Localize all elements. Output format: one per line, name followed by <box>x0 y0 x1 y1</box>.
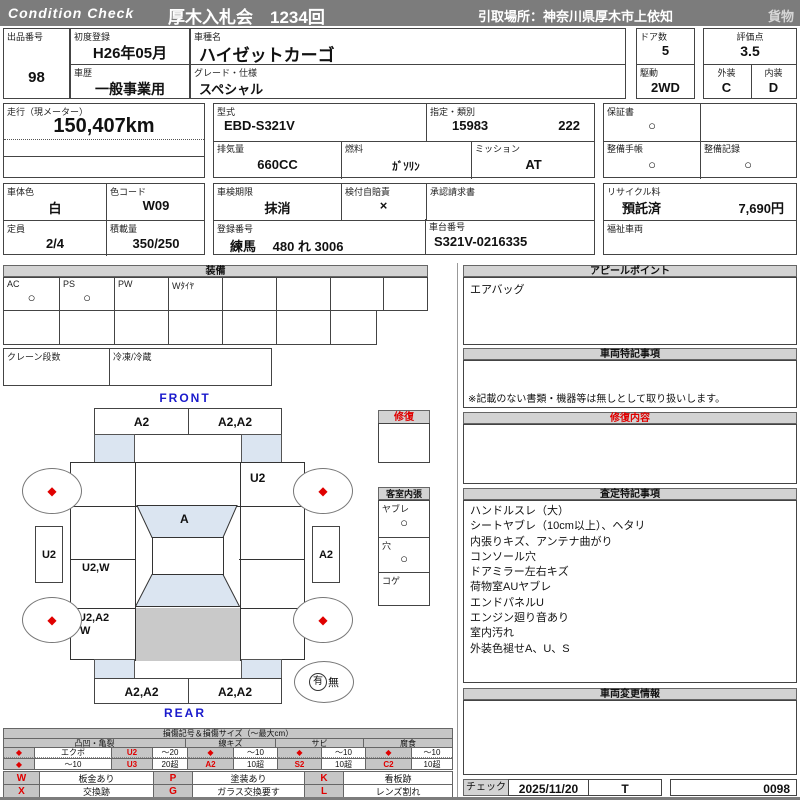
code-desc: 看板跡 <box>344 772 452 784</box>
equipment-cell-empty <box>331 278 384 310</box>
front-bumper-left: A2 <box>94 408 189 435</box>
exhibit-number-value: 98 <box>4 69 69 86</box>
drive-value: 2WD <box>637 80 694 95</box>
legend-size: ～10 <box>412 748 452 758</box>
assessment-line: 内張りキズ、アンテナ曲がり <box>470 535 790 550</box>
inspection-label: 車検期限 <box>217 185 253 198</box>
recycle-fee: 7,690円 <box>738 198 784 217</box>
assessment-line: コンソール穴 <box>470 550 790 565</box>
history-label: 車歴 <box>74 66 92 79</box>
equipment-mark: ○ <box>60 290 114 305</box>
spec-table: 型式 EBD-S321V 指定・類別 15983 222 排気量 660CC 燃… <box>213 103 595 178</box>
damage-diamond-mark: ◆ <box>47 485 56 497</box>
damage-legend-table: 損傷記号＆損傷サイズ（～最大cm） 凸凹・亀裂 線キズ サビ 腐食 ◆ エクボ … <box>3 728 453 770</box>
damage-diamond-mark: ◆ <box>318 614 327 626</box>
odometer-box: 走行（現メーター） 150,407km <box>3 103 205 178</box>
legend-size: ～10 <box>35 759 112 769</box>
class-label: 指定・類別 <box>430 105 475 118</box>
insurance-label: 検付自賠責 <box>345 185 390 198</box>
presence-yes-circled: 有 <box>309 673 327 691</box>
cabin-table: ヤブレ ○ 穴 ○ コゲ <box>378 500 430 606</box>
left-rear-code-line1: U2,A2 <box>78 612 109 624</box>
exterior-label: 外装 <box>704 66 749 79</box>
code-letter: W <box>4 772 40 784</box>
assessment-line: シートヤブレ（10cm以上）、ヘタリ <box>470 519 790 534</box>
cabin-header: 客室内張 <box>378 487 430 500</box>
hood-right-code: U2 <box>250 471 265 485</box>
damage-code: A2 <box>95 415 188 429</box>
code-letter: L <box>305 785 344 797</box>
assessment-line: エンドパネルU <box>470 596 790 611</box>
legend-group: サビ <box>276 739 364 747</box>
presence-oval: 有 無 <box>294 661 354 703</box>
damage-code: A2,A2 <box>189 685 281 699</box>
crane-box: クレーン段数 <box>3 348 110 386</box>
equipment-cell-empty <box>277 278 331 310</box>
equipment-cell-empty <box>115 311 169 344</box>
check-label-cell: チェック <box>463 779 509 796</box>
equipment-row-2 <box>3 310 377 345</box>
repair-mini-header: 修復 <box>378 410 430 424</box>
front-right-wheel: ◆ <box>293 468 353 514</box>
auction-title: 厚木入札会 1234回 <box>168 3 325 28</box>
cabin-item-label: コゲ <box>382 574 400 587</box>
left-rear-code-line2: W <box>80 625 90 637</box>
model-code-label: 型式 <box>217 105 235 118</box>
equipment-label: AC <box>7 279 20 289</box>
exterior-value: C <box>704 80 749 95</box>
legend-mark: ◆ <box>4 759 35 769</box>
front-right-pillar-panel <box>241 434 282 463</box>
fuel-label: 燃料 <box>345 142 363 155</box>
cab-roof-panel <box>152 537 224 575</box>
repair-details-box <box>463 424 797 484</box>
welfare-label: 福祉車両 <box>607 222 643 235</box>
legend-code: S2 <box>278 759 322 769</box>
appeal-content: エアバッグ <box>470 281 525 297</box>
transmission-value: AT <box>471 157 596 172</box>
serial-number: 0098 <box>763 782 790 796</box>
capacity-value: 2/4 <box>4 236 106 251</box>
grade-value: スペシャル <box>199 79 625 98</box>
color-code-label: 色コード <box>110 185 146 198</box>
score-value: 3.5 <box>704 43 796 59</box>
left-side-panel: U2 <box>35 526 63 583</box>
equipment-cell-empty <box>277 311 331 344</box>
legend-size: 10超 <box>234 759 278 769</box>
front-bumper-right: A2,A2 <box>188 408 282 435</box>
left-mid-code: U2,W <box>82 562 110 574</box>
equipment-cell-ps: PS ○ <box>60 278 115 310</box>
legend-group: 凸凹・亀裂 <box>4 739 186 747</box>
repair-mini-box <box>378 423 430 463</box>
cabin-item-mark: ○ <box>379 551 429 566</box>
legend-code: A2 <box>188 759 234 769</box>
diagram-rear-label: REAR <box>140 706 230 720</box>
score-label: 評価点 <box>704 30 796 43</box>
assessment-line: 荷物室AUヤブレ <box>470 580 790 595</box>
doors-drive-table: ドア数 5 駆動 2WD <box>636 28 695 99</box>
chassis-cell: 車台番号 S321V-0216335 <box>425 219 595 255</box>
damage-codes-table: W 板金あり P 塗装あり K 看板跡 X 交換跡 G ガラス交換要す L レン… <box>3 771 453 798</box>
presence-no: 無 <box>328 674 339 690</box>
damage-code: A2,A2 <box>189 415 281 429</box>
equipment-label: PW <box>118 279 133 289</box>
interior-value: D <box>751 80 796 95</box>
maintenance-book-value: ○ <box>604 157 700 172</box>
front-left-wheel: ◆ <box>22 468 82 514</box>
cargo-type: 貨物 <box>768 6 794 25</box>
warranty-label: 保証書 <box>607 105 634 118</box>
doors-label: ドア数 <box>640 30 667 43</box>
legend-code: U3 <box>112 759 153 769</box>
vehicle-notes-disclaimer: ※記載のない書類・機器等は無しとして取り扱いします。 <box>468 390 725 405</box>
check-date-cell: 2025/11/20 <box>508 779 589 796</box>
code-desc: 交換跡 <box>40 785 154 797</box>
rear-window-panel <box>135 574 240 607</box>
equipment-header: 装備 <box>3 265 428 277</box>
equipment-row-1: AC ○ PS ○ PW Wﾀｲﾔ <box>3 277 428 311</box>
equipment-cell-empty <box>169 311 223 344</box>
vehicle-notes-box: ※記載のない書類・機器等は無しとして取り扱いします。 <box>463 360 797 408</box>
body-color-label: 車体色 <box>7 185 34 198</box>
legend-size: 10超 <box>412 759 452 769</box>
registration-history-table: 初度登録 H26年05月 車歴 一般事業用 <box>70 28 190 99</box>
legend-group: 腐食 <box>364 739 452 747</box>
recycle-table: リサイクル料 預託済 7,690円 福祉車両 <box>603 183 797 255</box>
front-left-pillar-panel <box>94 434 135 463</box>
cabin-item-mark: ○ <box>379 515 429 530</box>
crane-label: クレーン段数 <box>7 350 61 363</box>
check-date: 2025/11/20 <box>509 782 588 796</box>
right-side-panel: A2 <box>312 526 340 583</box>
fridge-label: 冷凍/冷蔵 <box>113 350 152 363</box>
damage-code: A2 <box>319 549 333 561</box>
rear-left-pillar-panel <box>94 659 135 679</box>
assessment-line: ドアミラー左右キズ <box>470 565 790 580</box>
rear-left-wheel: ◆ <box>22 597 82 643</box>
assessment-line: 外装色褪せA、U、S <box>470 642 790 657</box>
score-table: 評価点 3.5 外装 C 内装 D <box>703 28 797 99</box>
code-desc: 塗装あり <box>193 772 305 784</box>
body-color-value: 白 <box>4 198 106 217</box>
maintenance-record-value: ○ <box>700 157 796 172</box>
changes-header: 車両変更情報 <box>463 688 797 700</box>
vehicle-notes-header: 車両特記事項 <box>463 348 797 360</box>
appeal-box: エアバッグ <box>463 277 797 345</box>
legend-size: 10超 <box>322 759 366 769</box>
maintenance-record-label: 整備記録 <box>704 142 740 155</box>
legend-code: C2 <box>366 759 412 769</box>
warranty-value: ○ <box>604 118 700 133</box>
legend-term: エクボ <box>35 748 112 758</box>
assessment-header: 査定特記事項 <box>463 488 797 500</box>
legend-mark: ◆ <box>4 748 35 758</box>
rear-bumper-right: A2,A2 <box>188 678 282 704</box>
code-desc: ガラス交換要す <box>193 785 305 797</box>
legend-mark: ◆ <box>278 748 322 758</box>
assessment-line: 室内汚れ <box>470 626 790 641</box>
cabin-item-label: ヤブレ <box>382 502 409 515</box>
inspection-value: 抹消 <box>214 198 341 217</box>
class-no2: 222 <box>558 118 580 133</box>
rear-bumper-left: A2,A2 <box>94 678 189 704</box>
odometer-value: 150,407km <box>4 115 204 138</box>
doors-value: 5 <box>637 43 694 58</box>
title-bar: Condition Check 厚木入札会 1234回 引取場所：神奈川県厚木市… <box>0 0 800 26</box>
equipment-cell-wtire: Wﾀｲﾔ <box>169 278 223 310</box>
reg-no-label: 登録番号 <box>217 222 253 235</box>
legend-mark: ◆ <box>366 748 412 758</box>
equipment-cell-empty <box>4 311 60 344</box>
legend-size: 20超 <box>153 759 188 769</box>
windshield-code: A <box>180 512 189 526</box>
checker-initial: T <box>589 782 661 796</box>
pickup-location: 引取場所：神奈川県厚木市上依知 <box>478 6 673 25</box>
fuel-value: ｶﾞｿﾘﾝ <box>341 158 471 174</box>
checker-cell: T <box>588 779 662 796</box>
code-letter: P <box>154 772 193 784</box>
equipment-cell-pw: PW <box>115 278 169 310</box>
cargo-roof-panel <box>136 608 240 661</box>
damage-code: A2,A2 <box>95 685 188 699</box>
assessment-line: ハンドルスレ（大） <box>470 504 790 519</box>
displacement-value: 660CC <box>214 157 341 172</box>
chassis-label: 車台番号 <box>429 220 465 233</box>
model-name-table: 車種名 ハイゼットカーゴ グレード・仕様 スペシャル <box>190 28 626 99</box>
exhibit-number-cell: 出品番号 98 <box>3 28 70 99</box>
equipment-cell-empty <box>384 278 427 310</box>
grade-label: グレード・仕様 <box>194 66 257 79</box>
legend-code: U2 <box>112 748 153 758</box>
diagram-front-label: FRONT <box>140 391 230 405</box>
appeal-header: アピールポイント <box>463 265 797 277</box>
code-desc: 板金あり <box>40 772 154 784</box>
interior-label: 内装 <box>751 66 796 79</box>
insurance-value: × <box>341 198 426 213</box>
equipment-cell-empty <box>223 278 277 310</box>
equipment-cell-ac: AC ○ <box>4 278 60 310</box>
chassis-value: S321V-0216335 <box>434 234 595 249</box>
recycle-label: リサイクル料 <box>607 185 661 198</box>
approval-label: 承認請求書 <box>430 185 475 198</box>
equipment-label: Wﾀｲﾔ <box>172 279 194 292</box>
damage-diamond-mark: ◆ <box>318 485 327 497</box>
rear-right-pillar-panel <box>241 659 282 679</box>
code-letter: K <box>305 772 344 784</box>
history-value: 一般事業用 <box>71 79 189 99</box>
serial-cell: 0098 <box>670 779 797 796</box>
equipment-cell-empty <box>223 311 277 344</box>
color-capacity-table: 車体色 白 色コード W09 定員 2/4 積載量 350/250 <box>3 183 205 255</box>
equipment-cell-empty <box>331 311 376 344</box>
repair-details-header: 修復内容 <box>463 412 797 424</box>
legend-size: ～10 <box>322 748 366 758</box>
code-desc: レンズ割れ <box>344 785 452 797</box>
legend-title: 損傷記号＆損傷サイズ（～最大cm） <box>4 729 452 738</box>
column-divider <box>457 263 458 797</box>
capacity-label: 定員 <box>7 222 25 235</box>
maintenance-book-label: 整備手帳 <box>607 142 643 155</box>
load-label: 積載量 <box>110 222 137 235</box>
legend-group: 線キズ <box>186 739 276 747</box>
code-letter: X <box>4 785 40 797</box>
equipment-mark: ○ <box>4 290 59 305</box>
brand-logo: Condition Check <box>8 5 134 21</box>
legend-size: ～20 <box>153 748 188 758</box>
exhibit-number-label: 出品番号 <box>7 30 43 43</box>
equipment-cell-empty <box>60 311 115 344</box>
code-letter: G <box>154 785 193 797</box>
fridge-box: 冷凍/冷蔵 <box>109 348 272 386</box>
load-value: 350/250 <box>106 236 206 251</box>
transmission-label: ミッション <box>475 142 520 155</box>
displacement-label: 排気量 <box>217 142 244 155</box>
color-code-value: W09 <box>106 198 206 213</box>
drive-label: 駆動 <box>640 66 658 79</box>
damage-code: U2 <box>42 549 56 561</box>
rear-right-wheel: ◆ <box>293 597 353 643</box>
changes-box <box>463 700 797 775</box>
legend-mark: ◆ <box>188 748 234 758</box>
model-name-value: ハイゼットカーゴ <box>199 41 625 66</box>
legend-size: ～10 <box>234 748 278 758</box>
assessment-line: エンジン廻り音あり <box>470 611 790 626</box>
equipment-label: PS <box>63 279 75 289</box>
assessment-box: ハンドルスレ（大） シートヤブレ（10cm以上）、ヘタリ 内張りキズ、アンテナ曲… <box>463 500 797 683</box>
damage-diamond-mark: ◆ <box>47 614 56 626</box>
first-registration-value: H26年05月 <box>71 42 189 63</box>
documents-table: 保証書 ○ 整備手帳 ○ 整備記録 ○ <box>603 103 797 178</box>
